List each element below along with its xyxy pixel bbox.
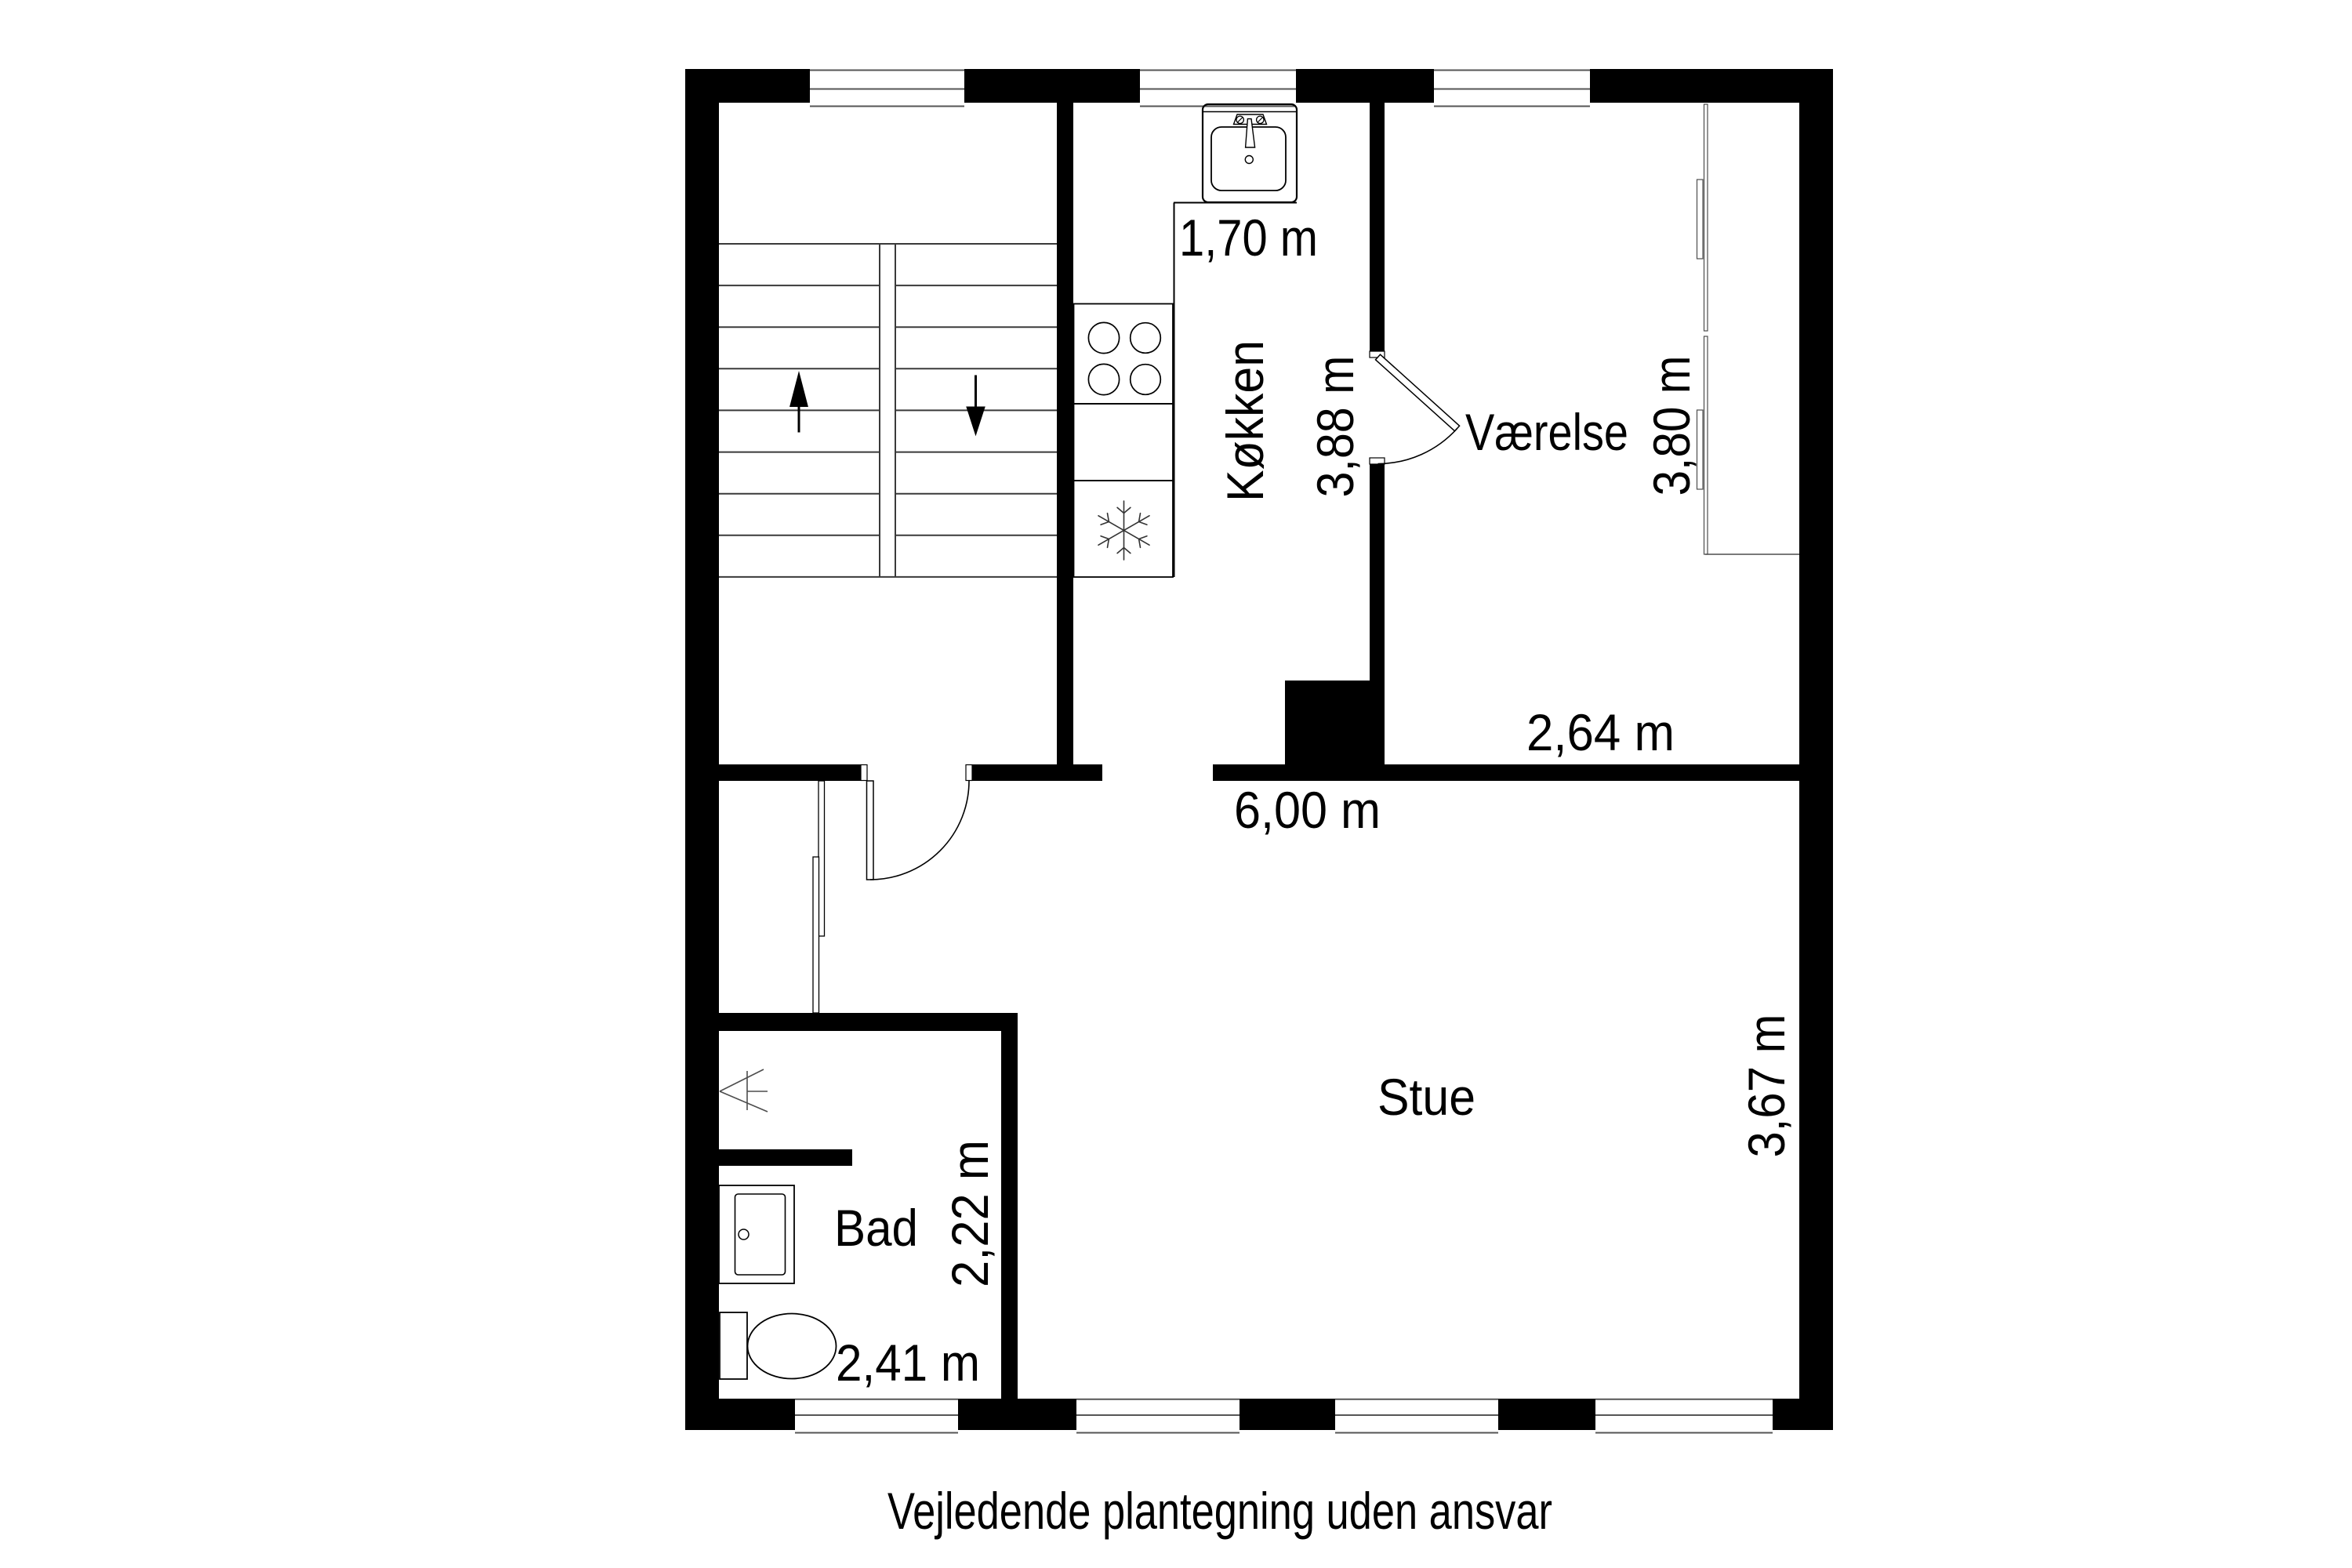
svg-text:3,80 m: 3,80 m (1642, 356, 1700, 496)
svg-text:3,67 m: 3,67 m (1737, 1014, 1795, 1158)
svg-text:2,22 m: 2,22 m (941, 1140, 999, 1287)
svg-text:2,41 m: 2,41 m (836, 1334, 980, 1392)
svg-text:2,64 m: 2,64 m (1526, 703, 1675, 761)
svg-text:Vejledende plantegning uden an: Vejledende plantegning uden ansvar (887, 1482, 1552, 1540)
svg-text:Stue: Stue (1377, 1068, 1475, 1126)
svg-text:6,00 m: 6,00 m (1234, 781, 1381, 839)
svg-text:Værelse: Værelse (1465, 403, 1628, 461)
svg-text:Køkken: Køkken (1216, 340, 1274, 502)
svg-text:1,70 m: 1,70 m (1179, 209, 1318, 267)
svg-text:Bad: Bad (834, 1199, 918, 1257)
svg-text:3,88 m: 3,88 m (1306, 356, 1364, 498)
